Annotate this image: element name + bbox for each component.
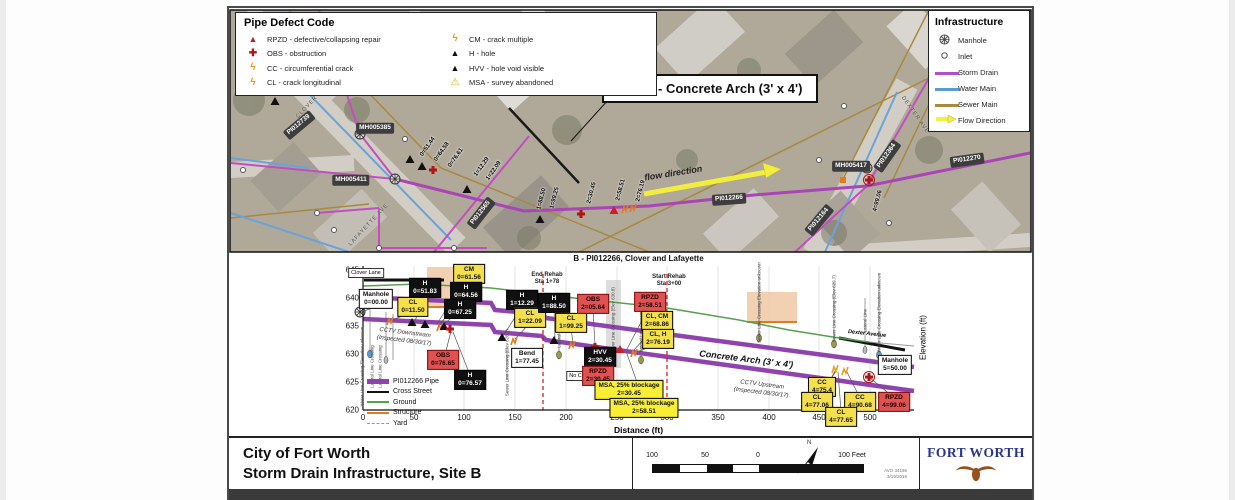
legend-item-label: HVV - hole void visible [469,64,544,73]
x-tick: 450 [812,413,825,422]
legend-item-label: Storm Drain [958,68,998,77]
crossing-label: Sewer Line Crossing Elevation unknown [756,261,761,345]
x-tick: 500 [863,413,876,422]
y-tick: 625 [335,378,359,387]
legend-item: ϟCM - crack multiple [446,32,648,47]
legend-item: Flow Direction [935,112,1023,128]
sheet-title-line2: Storm Drain Infrastructure, Site B [243,464,481,484]
x-tick: 400 [762,413,775,422]
defect-label: H1=88.50 [538,293,570,313]
legend-item-label: Sewer Main [958,100,998,109]
x-tick: 350 [711,413,724,422]
asset-label: MH005411 [332,175,369,186]
y-tick: 620 [335,406,359,415]
legend-items: ▲RPZD - defective/collapsing repair ✚OBS… [244,32,648,90]
pipe-swatch [367,379,389,384]
defect-label: CL4=77.65 [825,407,857,427]
legend-item: Sewer Main [935,96,1023,112]
scale-bar [652,464,864,473]
legend-item-label: RPZD - defective/collapsing repair [267,35,381,44]
start-rehab-label: Start RehabSta 3+00 [652,274,686,288]
legend-item-label: Inlet [958,52,972,61]
scale-segment [733,465,760,472]
defect-label: MSA, 25% blockage2=58.51 [609,398,678,418]
bottom-dark-bar [229,489,1032,500]
defect-label: CL1=99.25 [555,313,587,333]
scale-tick: 0 [756,452,760,459]
drawing-date: 3/19/2019 [865,474,907,480]
defect-label: RPZD2=58.51 [634,292,666,312]
storm-drain-swatch [935,68,953,77]
defect-label: RPZD4=99.06 [878,392,910,412]
clover-lane-label: Clover Lane [348,268,384,278]
fort-worth-logo-text: FORT WORTH [927,445,1025,461]
legend-item-label: CC - circumferential crack [267,64,353,73]
red-triangle-icon: ▲ [244,35,262,44]
orange-crack-icon: ϟ [244,63,262,73]
chart-legend-item: Ground [367,397,439,408]
crossing-label: Sewer Line Crossing (Elev 628.7) [504,321,509,405]
ground-swatch [367,401,389,403]
x-tick: 100 [457,413,470,422]
legend-item-label: Water Main [958,84,996,93]
black-triangle-icon: ▲ [446,64,464,73]
legend-item-label: MSA - survey abandoned [469,78,553,87]
longhorn-icon [946,462,1006,484]
legend-title: Pipe Defect Code [244,17,648,29]
chart-defect-markers [355,307,890,383]
defect-label: OBS2=05.64 [577,294,609,314]
x-tick: 150 [508,413,521,422]
legend-item: Storm Drain [935,64,1023,80]
sheet-title: City of Fort Worth Storm Drain Infrastru… [243,444,481,483]
inlet-icon [935,51,953,62]
orange-crack-icon: ϟ [446,34,464,44]
chart-legend-item: Yard [367,418,439,429]
crossing-label: Water Line Crossing Elevation unknown [359,325,364,409]
defect-label: CL0=11.50 [397,297,428,317]
legend-title: Infrastructure [935,16,1023,28]
defect-label: HVV2=30.45 [584,347,616,367]
page-edge-left [0,0,6,500]
water-main-swatch [935,84,953,93]
defect-label: H0=76.57 [454,370,486,390]
page-edge-right [1229,0,1235,500]
defect-label: CL, H2=76.19 [642,329,674,349]
drawing-notes: AVO 34186 3/19/2019 [865,468,907,481]
end-rehab-label: End RehabSta 1+78 [531,272,562,286]
crossing-label: Water Line Crossing Elevation unknown [876,271,881,355]
red-cross-icon: ✚ [244,49,262,59]
x-tick: 0 [361,413,365,422]
infrastructure-legend: Infrastructure Manhole Inlet Storm Drain… [928,10,1030,132]
defect-label: OBS0=76.65 [427,350,459,370]
y-tick: 630 [335,350,359,359]
legend-item: ▲HVV - hole void visible [446,61,648,76]
legend-item: ▲H - hole [446,47,648,62]
scale-tick: 50 [701,452,709,459]
pipe-defect-legend: Pipe Defect Code ▲RPZD - defective/colla… [235,12,657,96]
legend-item-label: H - hole [469,49,495,58]
crossing-label: Sewer Line Crossing (Elev 629.7) [831,267,836,351]
page: Site B - Concrete Arch (3' x 4') flow di… [0,0,1235,500]
legend-item: Manhole [935,32,1023,48]
legend-item-label: CL - crack longitudinal [267,78,341,87]
legend-item: Water Main [935,80,1023,96]
orange-crack-icon: ϟ [244,78,262,88]
legend-item-label: CM - crack multiple [469,35,533,44]
sheet-title-line1: City of Fort Worth [243,444,481,464]
legend-item: Inlet [935,48,1023,64]
x-tick: 200 [559,413,572,422]
legend-item-label: Manhole [958,36,987,45]
title-block: City of Fort Worth Storm Drain Infrastru… [229,436,1032,491]
legend-item-label: Flow Direction [958,116,1006,125]
legend-item: ✚OBS - obstruction [244,47,446,62]
legend-item: ϟCC - circumferential crack [244,61,446,76]
y-tick: 640 [335,294,359,303]
defect-label: H0=51.83 [409,278,441,298]
logo-cell: FORT WORTH [919,438,1032,491]
defect-label: Bend1=77.45 [511,348,543,368]
asset-label: MH005385 [356,123,394,134]
chart-title: B - PI012266, Clover and Lafayette [363,254,914,263]
chart-legend-item: Structure [367,408,439,419]
scale-segment [679,465,706,472]
legend-item-label: OBS - obstruction [267,49,326,58]
scale-segment [707,465,733,472]
scale-segment [653,465,679,472]
chart-legend: PI012266 Pipe Cross Street Ground Struct… [367,376,439,429]
asset-label: MH005417 [832,161,870,172]
north-arrow-icon [785,442,825,482]
structure-swatch [367,412,389,415]
black-triangle-icon: ▲ [446,49,464,58]
defect-label: H0=67.25 [444,299,476,319]
defect-label: Manhole5=50.00 [878,355,912,375]
crossing-label: Lateral Line [862,279,867,363]
defect-label: Manhole0=00.00 [359,289,393,309]
legend-item: ⚠MSA - survey abandoned [446,76,648,91]
warning-triangle-icon: ⚠ [446,78,464,88]
map-document: Site B - Concrete Arch (3' x 4') flow di… [227,6,1034,500]
legend-item: ϟCL - crack longitudinal [244,76,446,91]
flow-arrow-icon [935,114,953,126]
y-tick: 635 [335,322,359,331]
scale-tick: 100 Feet [838,452,866,459]
legend-item: ▲RPZD - defective/collapsing repair [244,32,446,47]
y-axis-label: Elevation (ft) [919,308,928,368]
manhole-icon [935,34,953,47]
title-block-divider [632,438,633,491]
scale-tick: 100 [646,452,658,459]
sewer-main-swatch [935,100,953,109]
yard-swatch [367,423,389,424]
street-swatch [367,391,389,394]
chart-legend-item: PI012266 Pipe [367,376,439,387]
chart-legend-item: Cross Street [367,387,439,398]
